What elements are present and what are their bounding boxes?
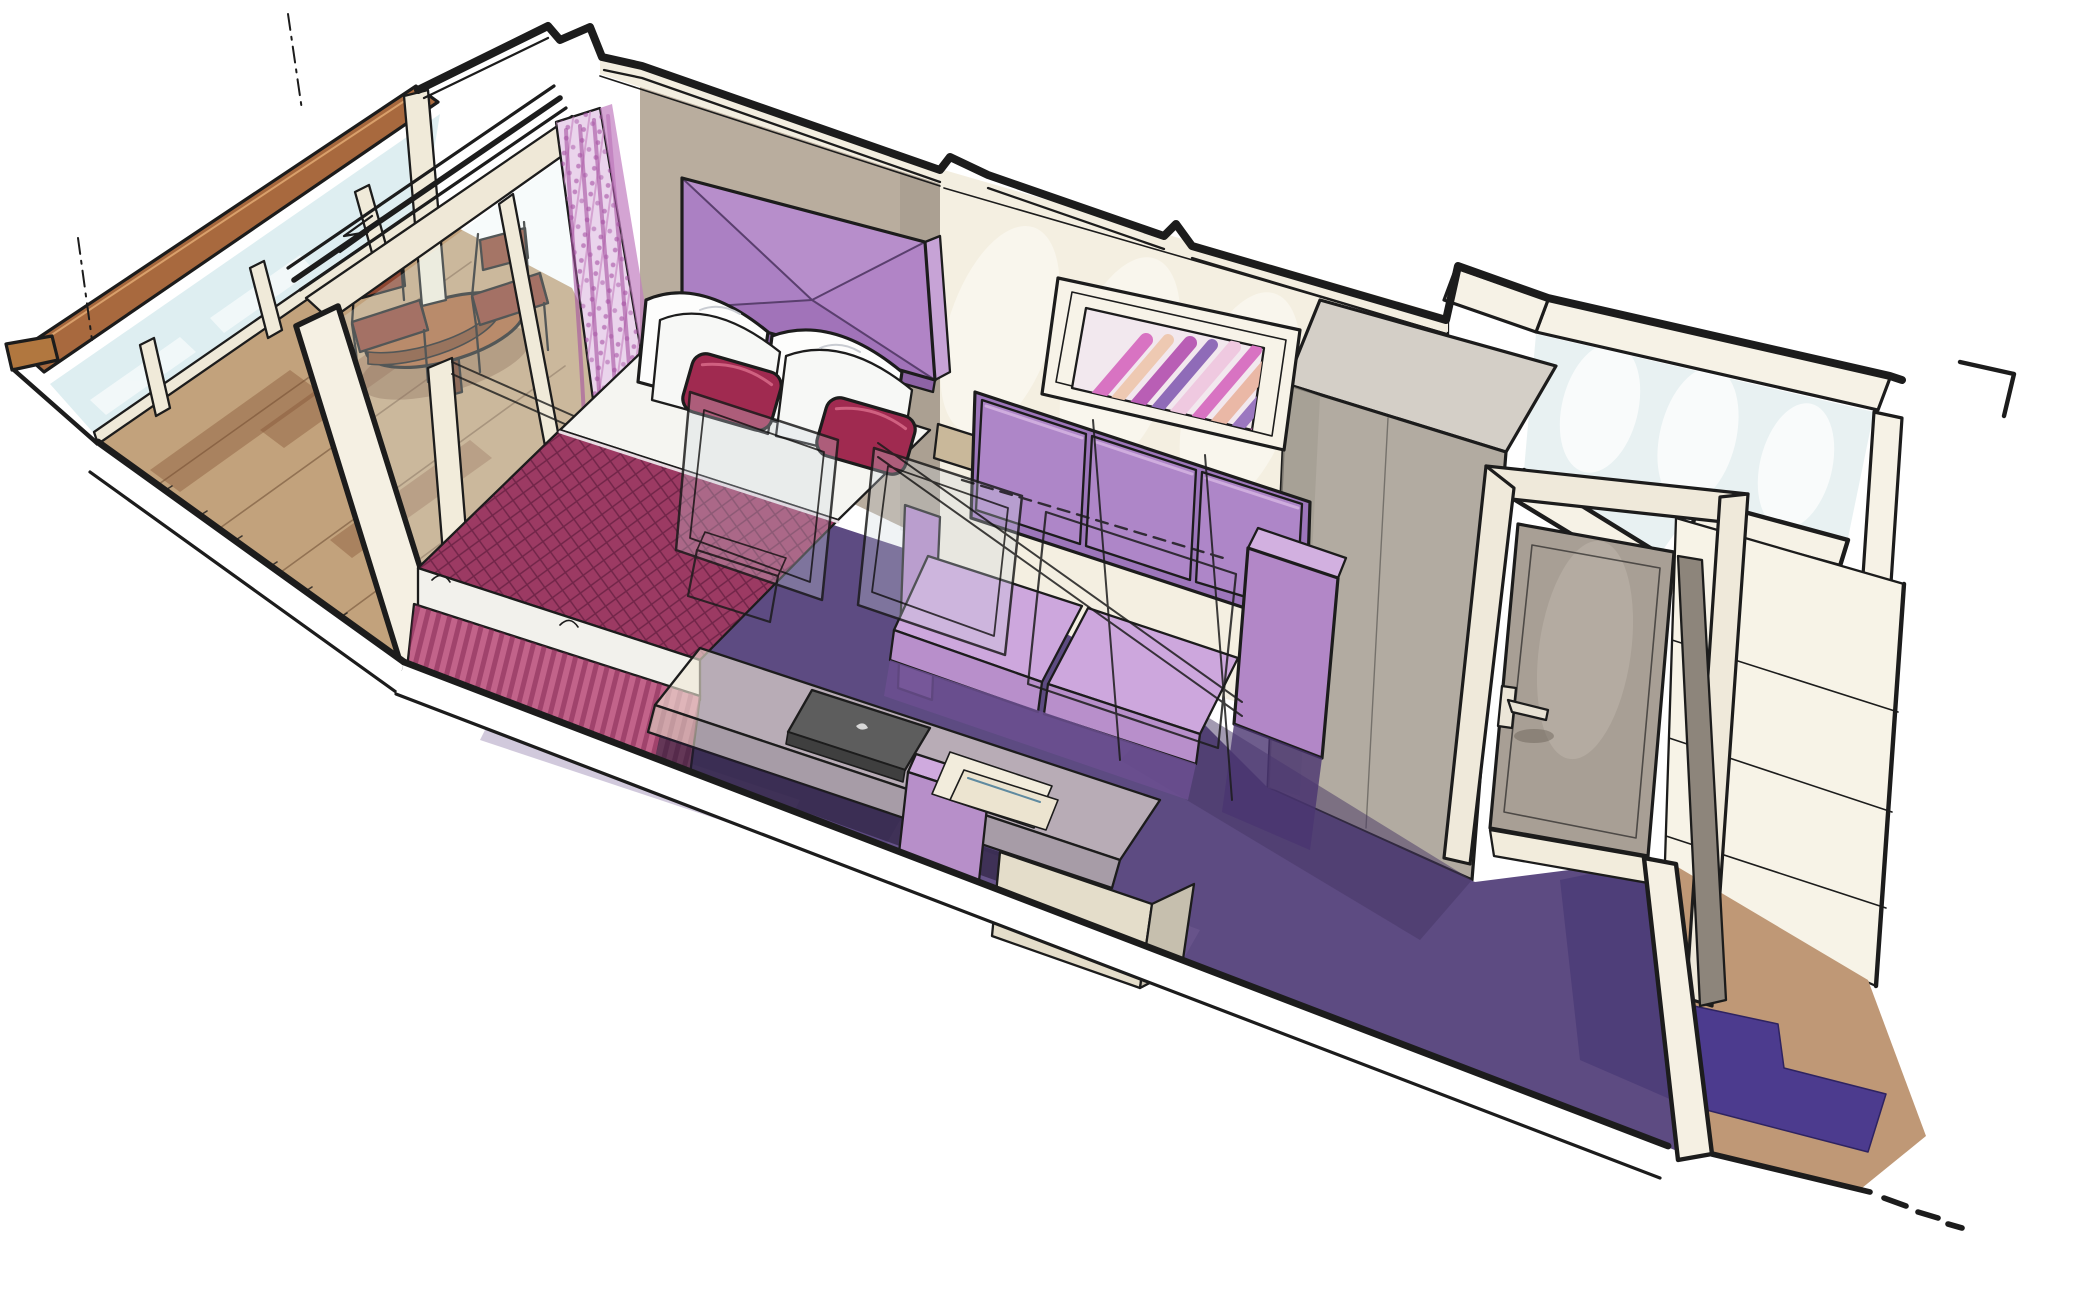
handle-shadow <box>1514 729 1554 743</box>
cutaway-illustration: Cruise ship balcony stateroom — cutaway … <box>0 0 2100 1299</box>
wall-mark <box>1960 362 2014 416</box>
sofa-right-arm <box>1234 548 1338 758</box>
cabin-cutaway-drawing <box>0 0 2100 1299</box>
corridor-cut-dashes <box>1884 1198 1962 1228</box>
